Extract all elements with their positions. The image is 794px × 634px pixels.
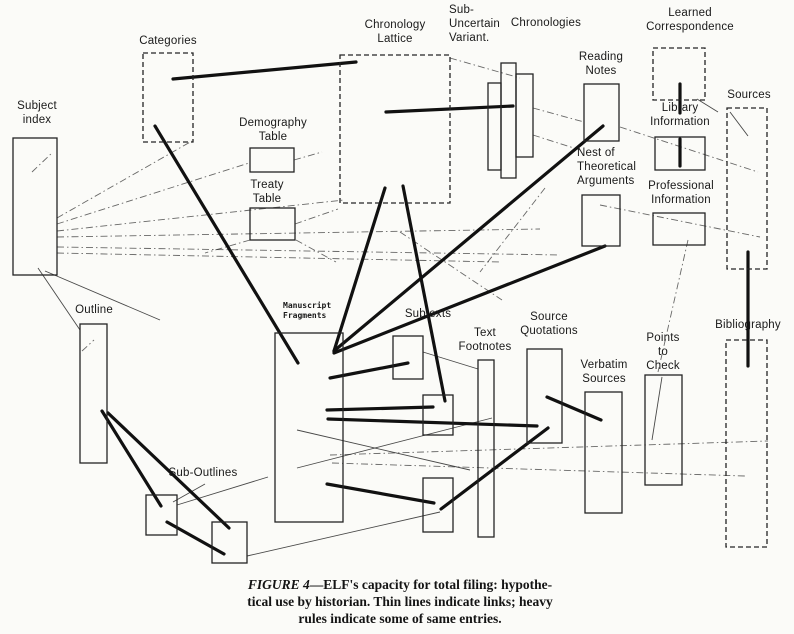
- subtexts-box: [393, 336, 423, 379]
- heavy-rule: [334, 126, 603, 351]
- chronology-lattice-box: [340, 55, 450, 203]
- points-to-check-box: [645, 375, 682, 485]
- link-line: [658, 240, 688, 372]
- figure-caption: FIGURE 4—ELF's capacity for total filing…: [180, 576, 620, 627]
- link-line: [294, 152, 322, 160]
- figure-number: FIGURE 4: [248, 577, 310, 592]
- caption-line-3: rules indicate some of same entries.: [180, 610, 620, 627]
- link-line: [45, 271, 160, 320]
- link-line: [297, 418, 492, 468]
- outline-box: [80, 324, 107, 463]
- figure-page: Subject indexCategoriesDemography TableT…: [0, 0, 794, 634]
- link-line: [652, 377, 662, 440]
- link-line: [57, 200, 344, 231]
- link-line: [620, 127, 758, 172]
- caption-line-1-text: ELF's capacity for total filing: hypothe…: [323, 577, 552, 592]
- heavy-rule: [173, 62, 356, 79]
- link-line: [730, 112, 748, 136]
- bibliography-box: [726, 340, 767, 547]
- link-line: [57, 247, 560, 255]
- subject-index-box: [13, 138, 57, 275]
- caption-dash: —: [310, 577, 324, 592]
- heavy-rule: [330, 363, 408, 378]
- sources-box: [727, 108, 767, 269]
- link-line: [600, 205, 760, 237]
- diagram-canvas: [0, 0, 794, 570]
- heavy-rule: [547, 397, 601, 420]
- link-line: [533, 135, 580, 150]
- caption-line-2: tical use by historian. Thin lines indic…: [180, 593, 620, 610]
- heavy-rule: [334, 246, 605, 353]
- link-line: [295, 209, 338, 224]
- caption-line-1: FIGURE 4—ELF's capacity for total filing…: [180, 576, 620, 593]
- chronologies-box: [488, 83, 501, 170]
- heavy-rule: [102, 411, 161, 506]
- manuscript-fragments-box: [275, 333, 343, 522]
- chronologies-box: [516, 74, 533, 157]
- heavy-rule: [403, 186, 445, 401]
- link-line: [697, 99, 718, 112]
- text-footnotes-box: [478, 360, 494, 537]
- link-line: [423, 352, 478, 369]
- sub-outlines-box: [146, 495, 177, 535]
- chronologies-box: [501, 63, 516, 178]
- link-line: [332, 463, 745, 476]
- reading-notes-box: [584, 84, 619, 141]
- verbatim-sources-box: [585, 392, 622, 513]
- link-line: [297, 430, 470, 470]
- link-line: [57, 229, 540, 237]
- professional-information-box: [653, 213, 705, 245]
- heavy-rule: [328, 419, 537, 426]
- heavy-rule: [167, 522, 224, 554]
- heavy-rule: [108, 413, 229, 528]
- link-line: [32, 152, 53, 172]
- demography-table-box: [250, 148, 294, 172]
- link-line: [82, 340, 94, 351]
- heavy-rule: [155, 126, 298, 363]
- treaty-table-box: [250, 208, 295, 240]
- link-line: [296, 240, 336, 262]
- elf-filing-diagram: Subject indexCategoriesDemography TableT…: [0, 0, 794, 570]
- heavy-rule: [334, 188, 385, 351]
- link-line: [450, 58, 520, 78]
- link-line: [57, 163, 249, 224]
- link-line: [533, 108, 584, 122]
- nest-of-theoretical-arguments-box: [582, 195, 620, 246]
- categories-box: [143, 53, 193, 142]
